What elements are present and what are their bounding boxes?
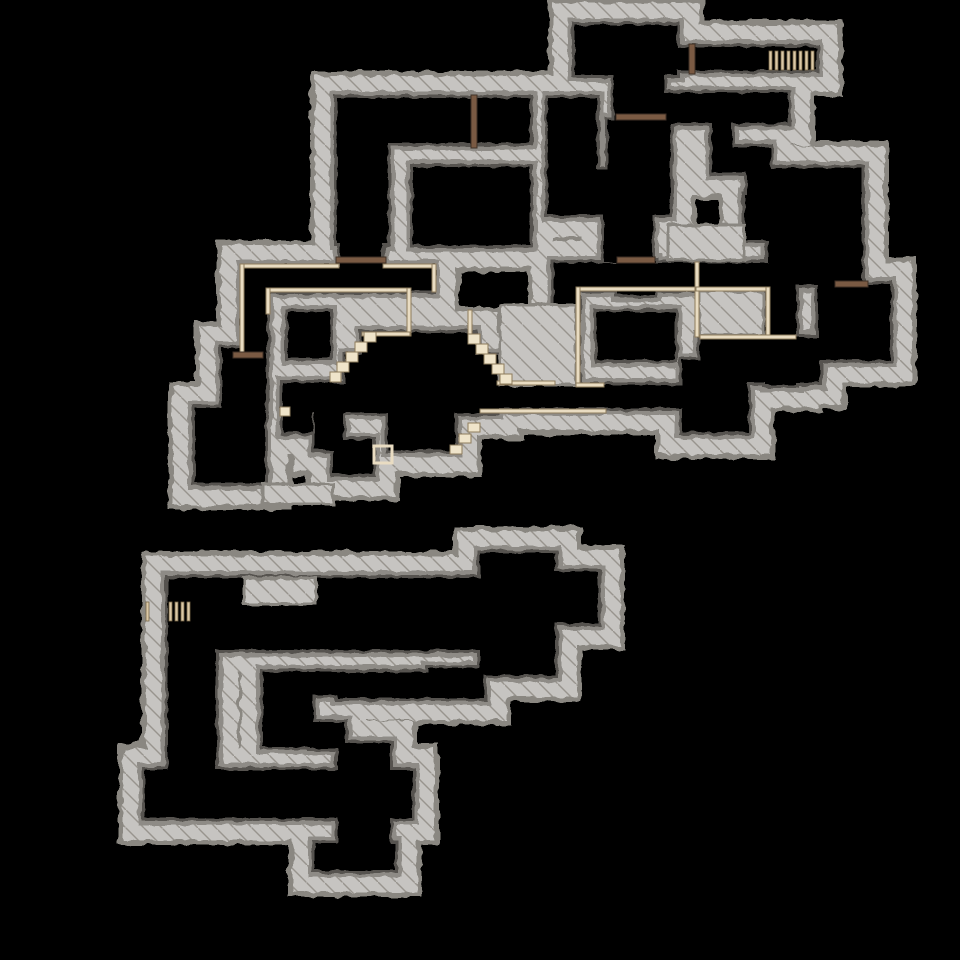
room-trim — [695, 262, 699, 337]
stairs-step-icon — [355, 342, 367, 352]
room-trim — [383, 264, 435, 268]
stairs-step-icon — [468, 334, 480, 344]
room-trim — [480, 409, 606, 413]
stairs-step-icon — [459, 434, 471, 443]
door-icon — [233, 352, 263, 358]
stairs-step-icon — [468, 423, 480, 432]
door-icon — [835, 281, 868, 287]
room-trim — [576, 383, 604, 387]
room-trim — [766, 287, 770, 339]
stairs-step-icon — [450, 445, 462, 454]
room-trim — [700, 335, 796, 339]
stairs-step-icon — [476, 344, 488, 354]
room-trim — [407, 288, 411, 336]
room-trim — [266, 288, 270, 314]
room-trim — [266, 288, 410, 292]
room-trim — [468, 310, 472, 336]
room-trim — [240, 264, 244, 356]
stairs-step-icon — [484, 354, 496, 364]
room-trim — [576, 287, 580, 387]
stairs-step-icon — [364, 332, 376, 342]
stairs-step-icon — [330, 372, 341, 382]
door-icon — [616, 114, 666, 120]
room-trim — [576, 287, 700, 291]
door-icon — [617, 257, 655, 263]
dungeon-map-canvas — [0, 0, 960, 960]
room-trim — [243, 264, 339, 268]
stairs-step-icon — [337, 362, 349, 372]
door-icon — [689, 44, 695, 74]
door-icon — [471, 95, 477, 148]
door-icon — [336, 257, 386, 263]
room-trim — [696, 287, 770, 291]
stairs-step-icon — [492, 364, 504, 374]
room-trim — [432, 264, 436, 292]
stairs-step-icon — [346, 352, 358, 362]
stairs-step-icon — [280, 407, 290, 416]
stairs-step-icon — [500, 374, 512, 384]
dungeon-map — [0, 0, 960, 960]
